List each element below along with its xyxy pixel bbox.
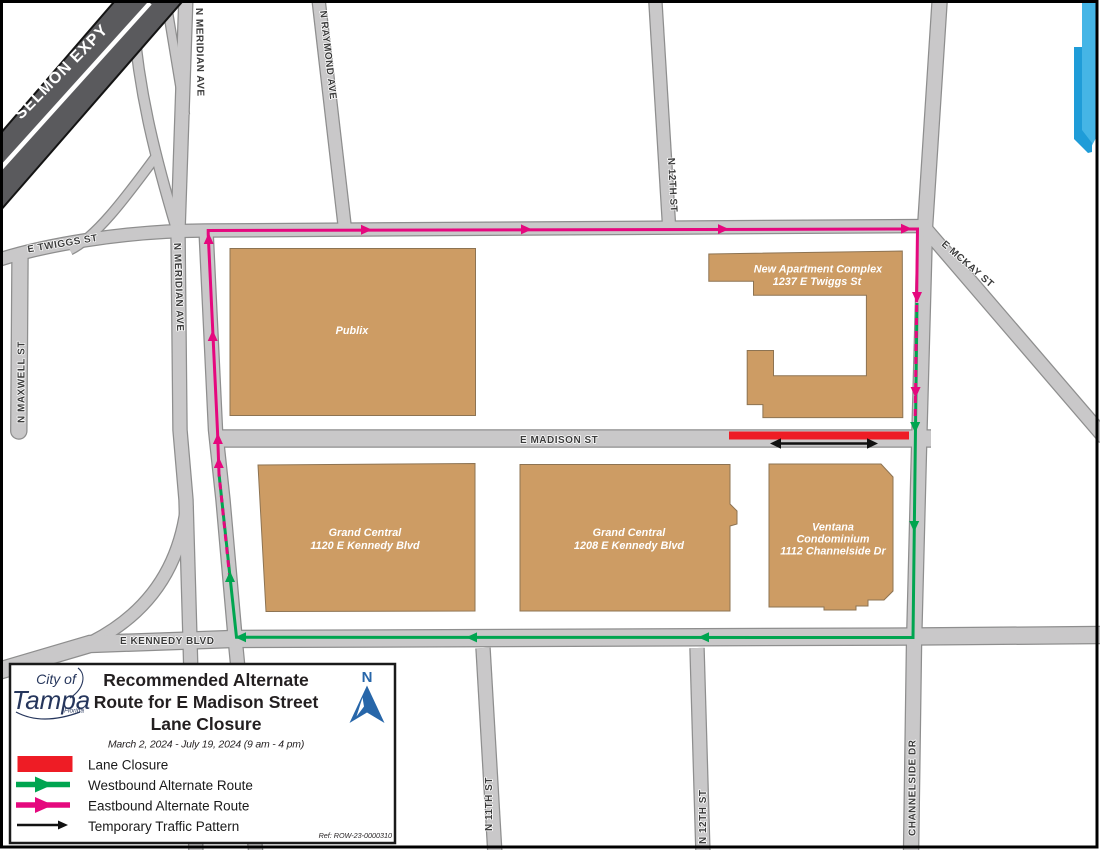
svg-text:Condominium: Condominium [796,534,869,546]
svg-text:E MADISON ST: E MADISON ST [520,435,598,446]
svg-text:N 11TH ST: N 11TH ST [484,777,495,831]
svg-text:E KENNEDY BLVD: E KENNEDY BLVD [120,636,214,647]
svg-text:Route for E Madison Street: Route for E Madison Street [94,692,319,712]
svg-text:N 12TH ST: N 12TH ST [698,789,709,844]
svg-text:March 2, 2024 - July 19, 2024: March 2, 2024 - July 19, 2024 (9 am - 4 … [108,739,304,751]
svg-text:Lane Closure: Lane Closure [151,714,262,734]
svg-text:1120 E Kennedy Blvd: 1120 E Kennedy Blvd [310,540,420,552]
svg-text:Grand Central: Grand Central [593,527,667,539]
svg-text:Eastbound Alternate Route: Eastbound Alternate Route [88,799,249,814]
svg-text:Publix: Publix [336,325,370,337]
svg-text:Lane Closure: Lane Closure [88,758,168,773]
svg-text:1208 E Kennedy Blvd: 1208 E Kennedy Blvd [574,540,685,552]
svg-text:Ventana: Ventana [812,522,854,534]
svg-text:CHANNELSIDE DR: CHANNELSIDE DR [908,739,919,836]
svg-text:N: N [362,669,373,686]
svg-text:Recommended Alternate: Recommended Alternate [103,670,309,690]
svg-text:Ref: ROW-23-0000310: Ref: ROW-23-0000310 [319,831,392,840]
svg-text:N MAXWELL ST: N MAXWELL ST [17,341,28,423]
svg-text:Westbound Alternate Route: Westbound Alternate Route [88,778,253,793]
svg-text:1237 E Twiggs St: 1237 E Twiggs St [773,276,862,288]
svg-text:1112 Channelside Dr: 1112 Channelside Dr [780,546,886,558]
svg-text:Temporary Traffic Pattern: Temporary Traffic Pattern [88,819,239,834]
svg-text:N MERIDIAN AVE: N MERIDIAN AVE [193,8,206,97]
svg-text:New Apartment Complex: New Apartment Complex [754,263,883,275]
svg-text:Grand Central: Grand Central [329,527,403,539]
